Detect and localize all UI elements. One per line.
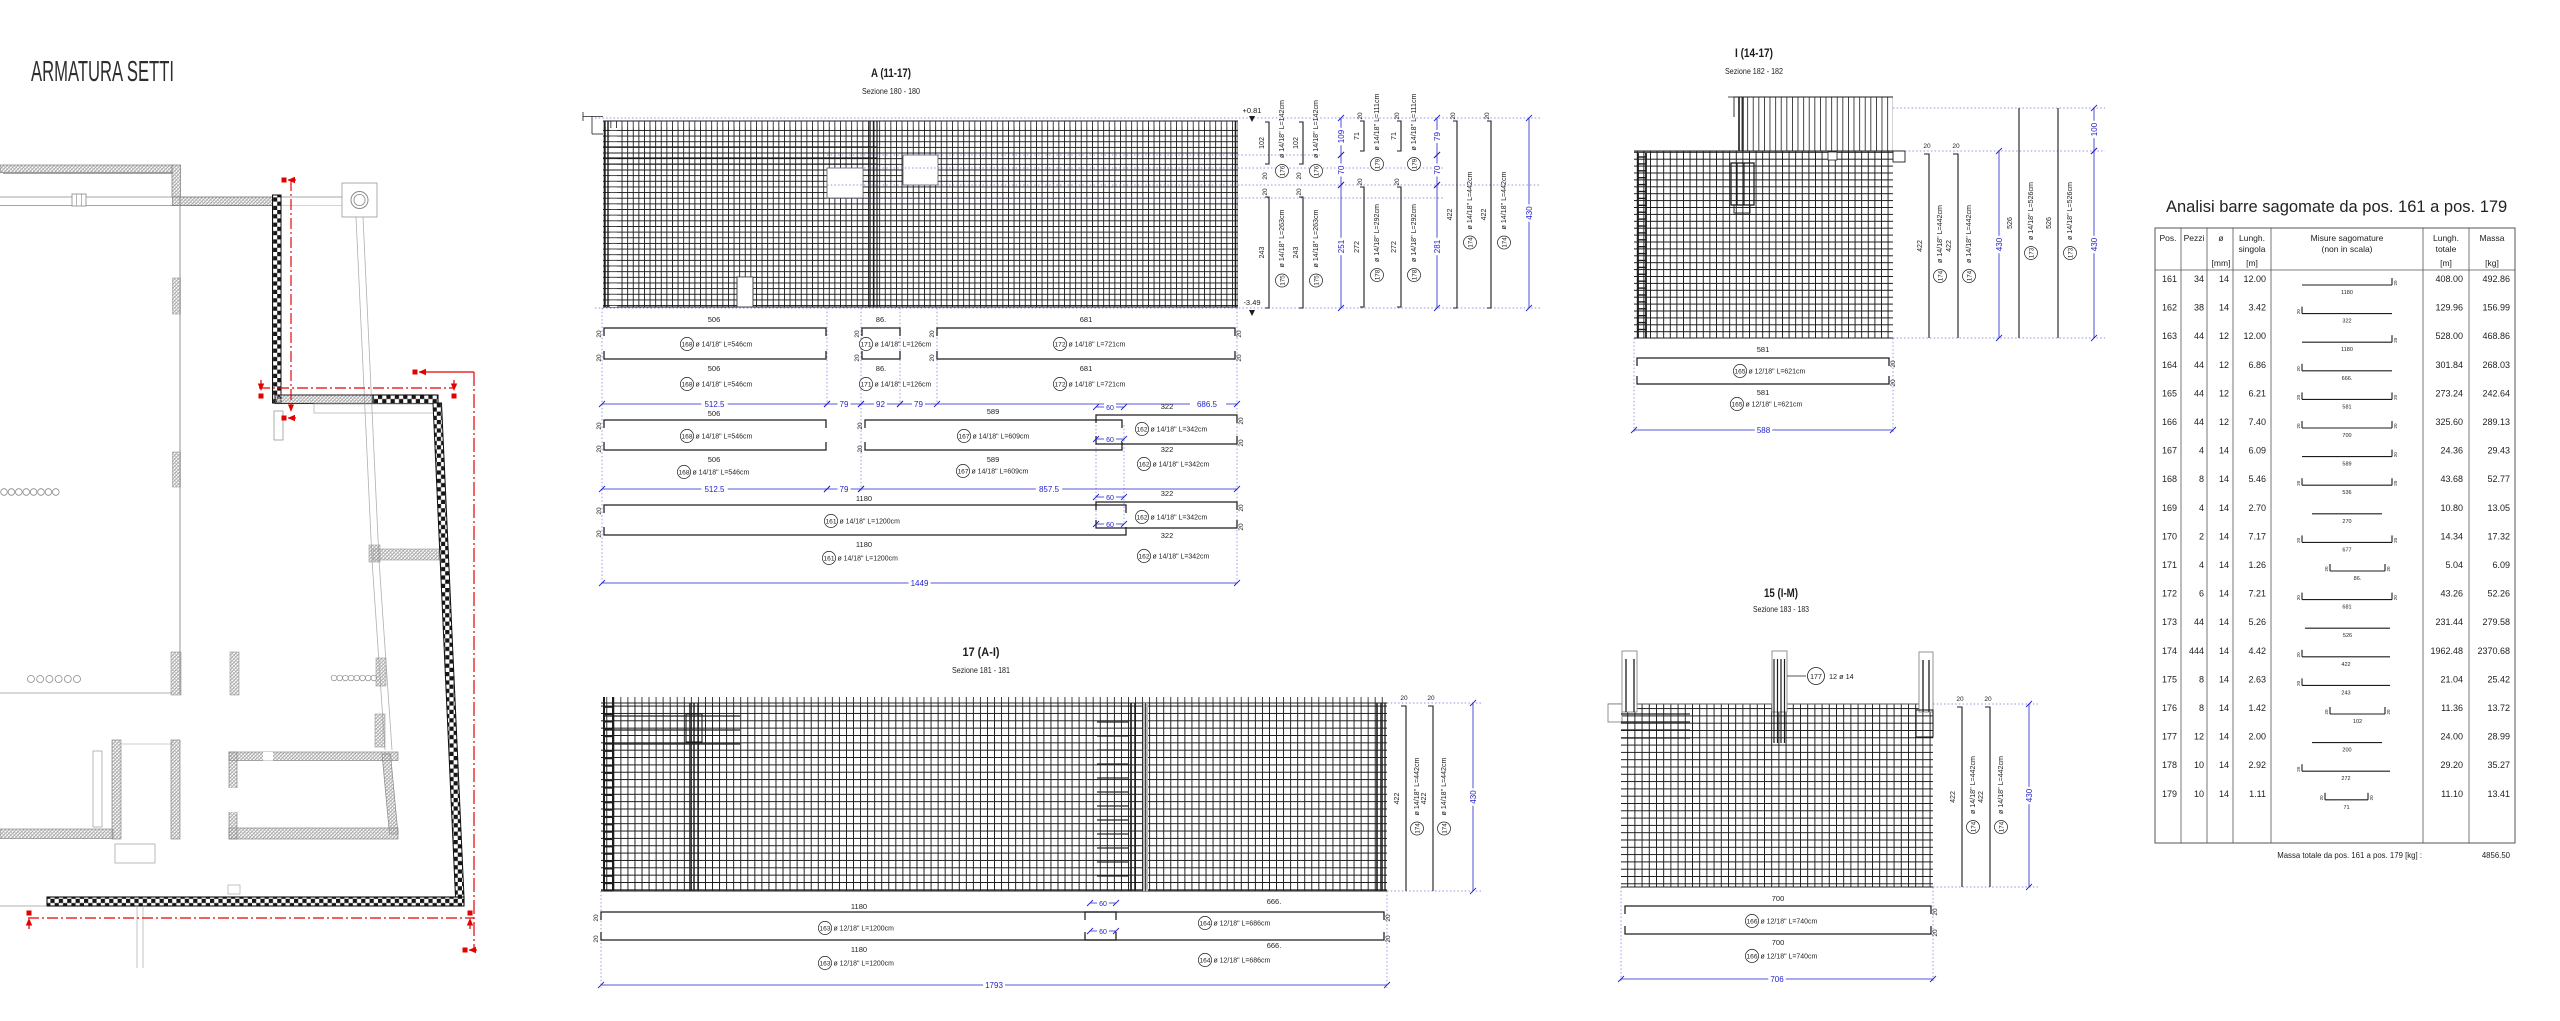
- svg-text:Lungh.: Lungh.: [2433, 233, 2459, 243]
- svg-text:86.: 86.: [876, 315, 886, 324]
- svg-text:Lungh.: Lungh.: [2239, 233, 2265, 243]
- svg-text:20: 20: [1394, 112, 1401, 120]
- svg-text:ø 12/18" L=686cm: ø 12/18" L=686cm: [1214, 956, 1271, 965]
- svg-text:79: 79: [914, 400, 923, 409]
- svg-text:272: 272: [1353, 241, 1361, 253]
- svg-text:20: 20: [1238, 523, 1245, 531]
- svg-text:12 ø 14: 12 ø 14: [1829, 672, 1854, 681]
- svg-text:281: 281: [1433, 239, 1442, 253]
- svg-text:20: 20: [2369, 795, 2374, 801]
- svg-text:422: 422: [1916, 240, 1924, 252]
- svg-text:ø 14/18" L=442cm: ø 14/18" L=442cm: [1936, 205, 1944, 263]
- svg-text:700: 700: [1772, 894, 1785, 903]
- svg-text:430: 430: [1995, 237, 2004, 251]
- svg-text:ø 14/18" L=126cm: ø 14/18" L=126cm: [875, 380, 932, 389]
- svg-text:60: 60: [1106, 405, 1114, 412]
- svg-text:164: 164: [2162, 360, 2177, 370]
- svg-text:171: 171: [2162, 560, 2177, 570]
- svg-text:270: 270: [2342, 519, 2351, 525]
- svg-text:279.58: 279.58: [2482, 617, 2510, 627]
- svg-text:179: 179: [1374, 158, 1381, 169]
- svg-text:+0.81: +0.81: [1243, 106, 1262, 115]
- svg-text:12.00: 12.00: [2243, 274, 2266, 284]
- svg-text:12: 12: [2219, 360, 2229, 370]
- svg-text:164: 164: [1199, 957, 1210, 964]
- svg-text:272: 272: [1390, 241, 1398, 253]
- svg-text:ø 14/18" L=292cm: ø 14/18" L=292cm: [1373, 204, 1381, 262]
- svg-text:ø 14/18" L=142cm: ø 14/18" L=142cm: [1312, 100, 1320, 158]
- svg-text:512.5: 512.5: [704, 485, 725, 494]
- svg-text:243: 243: [2341, 690, 2350, 696]
- svg-text:179: 179: [1411, 158, 1418, 169]
- svg-text:20: 20: [1236, 330, 1243, 338]
- svg-text:165: 165: [2162, 388, 2177, 398]
- svg-text:ø 14/18" L=111cm: ø 14/18" L=111cm: [1410, 93, 1418, 150]
- svg-text:176: 176: [1279, 165, 1286, 176]
- svg-text:172: 172: [1054, 381, 1065, 388]
- svg-text:20: 20: [596, 507, 603, 515]
- svg-text:681: 681: [2342, 605, 2351, 611]
- svg-text:Sezione 182 - 182: Sezione 182 - 182: [1725, 67, 1783, 76]
- svg-text:1793: 1793: [985, 981, 1003, 990]
- svg-text:14: 14: [2219, 446, 2229, 456]
- svg-text:20: 20: [596, 445, 603, 453]
- svg-text:176: 176: [2162, 703, 2177, 713]
- svg-text:4: 4: [2199, 446, 2204, 456]
- svg-text:70: 70: [1337, 165, 1346, 174]
- svg-text:34: 34: [2194, 274, 2204, 284]
- svg-text:178: 178: [2162, 760, 2177, 770]
- svg-text:[kg]: [kg]: [2485, 258, 2499, 268]
- svg-text:168: 168: [681, 381, 692, 388]
- svg-text:ø 14/18" L=442cm: ø 14/18" L=442cm: [1413, 757, 1421, 815]
- svg-text:666.: 666.: [1267, 941, 1282, 950]
- svg-text:422: 422: [1945, 240, 1953, 252]
- svg-text:20: 20: [2324, 709, 2329, 715]
- svg-text:171: 171: [860, 341, 871, 348]
- svg-text:177: 177: [1810, 674, 1822, 681]
- svg-text:3.42: 3.42: [2248, 303, 2266, 313]
- svg-text:175: 175: [1313, 275, 1320, 286]
- svg-text:20: 20: [2386, 709, 2391, 715]
- svg-text:12.00: 12.00: [2243, 331, 2266, 341]
- svg-text:ø 14/18" L=442cm: ø 14/18" L=442cm: [1500, 171, 1508, 229]
- svg-text:20: 20: [2296, 423, 2301, 429]
- svg-text:242.64: 242.64: [2482, 388, 2510, 398]
- svg-text:Sezione 180 - 180: Sezione 180 - 180: [862, 87, 920, 96]
- svg-text:20: 20: [1385, 935, 1392, 943]
- svg-text:ø 14/18" L=546cm: ø 14/18" L=546cm: [696, 432, 753, 441]
- svg-text:301.84: 301.84: [2435, 360, 2463, 370]
- svg-text:174: 174: [1414, 823, 1421, 834]
- svg-text:2: 2: [2199, 531, 2204, 541]
- svg-text:156.99: 156.99: [2482, 303, 2510, 313]
- svg-text:1180: 1180: [851, 902, 867, 911]
- svg-text:322: 322: [1161, 402, 1174, 411]
- svg-text:ø: ø: [2218, 233, 2223, 243]
- svg-text:20: 20: [2296, 680, 2301, 686]
- svg-text:506: 506: [708, 315, 721, 324]
- svg-text:20: 20: [1296, 172, 1303, 180]
- svg-text:20: 20: [2393, 480, 2398, 486]
- svg-text:20: 20: [1394, 178, 1401, 186]
- svg-text:44: 44: [2194, 360, 2204, 370]
- svg-text:268.03: 268.03: [2482, 360, 2510, 370]
- svg-text:272: 272: [2341, 776, 2350, 782]
- svg-text:166: 166: [1746, 953, 1757, 960]
- svg-text:706: 706: [1770, 975, 1784, 984]
- svg-text:20: 20: [1262, 172, 1269, 180]
- svg-text:165: 165: [1731, 401, 1742, 408]
- svg-text:I (14-17): I (14-17): [1735, 48, 1773, 60]
- svg-text:ø 12/18" L=621cm: ø 12/18" L=621cm: [1746, 400, 1803, 409]
- svg-text:28.99: 28.99: [2487, 732, 2510, 742]
- svg-text:2.63: 2.63: [2248, 674, 2266, 684]
- svg-text:163: 163: [819, 960, 830, 967]
- svg-text:A (11-17): A (11-17): [871, 68, 911, 80]
- svg-text:20: 20: [596, 330, 603, 338]
- svg-text:20: 20: [1238, 439, 1245, 447]
- svg-text:20: 20: [1932, 908, 1939, 916]
- svg-text:167: 167: [2162, 446, 2177, 456]
- svg-text:686.5: 686.5: [1197, 400, 1218, 409]
- svg-text:165: 165: [1734, 368, 1745, 375]
- svg-text:ø 14/18" L=1200cm: ø 14/18" L=1200cm: [838, 554, 898, 563]
- svg-text:174: 174: [1998, 821, 2005, 832]
- svg-text:24.00: 24.00: [2440, 732, 2463, 742]
- svg-text:167: 167: [958, 433, 969, 440]
- svg-text:20: 20: [1357, 112, 1364, 120]
- svg-text:322: 322: [1161, 531, 1174, 540]
- svg-text:13.72: 13.72: [2487, 703, 2510, 713]
- svg-text:430: 430: [2025, 788, 2034, 802]
- svg-text:422: 422: [1420, 793, 1428, 805]
- svg-text:6.86: 6.86: [2248, 360, 2266, 370]
- svg-text:1.11: 1.11: [2249, 789, 2266, 799]
- svg-text:444: 444: [2189, 646, 2204, 656]
- svg-text:21.04: 21.04: [2440, 674, 2463, 684]
- svg-text:20: 20: [593, 935, 600, 943]
- svg-text:589: 589: [2342, 462, 2351, 468]
- svg-text:ø 14/18" L=526cm: ø 14/18" L=526cm: [2066, 182, 2074, 240]
- svg-text:1962.48: 1962.48: [2430, 646, 2463, 656]
- svg-text:2.70: 2.70: [2248, 503, 2266, 513]
- svg-text:162: 162: [2162, 303, 2177, 313]
- svg-text:20: 20: [596, 354, 603, 362]
- svg-text:60: 60: [1099, 929, 1107, 936]
- svg-text:161: 161: [2162, 274, 2177, 284]
- svg-text:17.32: 17.32: [2487, 531, 2510, 541]
- svg-text:162: 162: [1138, 461, 1149, 468]
- svg-text:20: 20: [2319, 795, 2324, 801]
- svg-text:8: 8: [2199, 703, 2204, 713]
- svg-text:20: 20: [2296, 595, 2301, 601]
- svg-text:ø 14/18" L=263cm: ø 14/18" L=263cm: [1312, 209, 1320, 267]
- svg-text:ø 14/18" L=126cm: ø 14/18" L=126cm: [875, 340, 932, 349]
- svg-text:52.26: 52.26: [2487, 589, 2510, 599]
- svg-text:ø 14/18" L=442cm: ø 14/18" L=442cm: [1440, 757, 1448, 815]
- svg-text:ø 12/18" L=740cm: ø 12/18" L=740cm: [1761, 917, 1818, 926]
- svg-text:20: 20: [2296, 766, 2301, 772]
- svg-text:20: 20: [2296, 366, 2301, 372]
- svg-text:20: 20: [2296, 309, 2301, 315]
- svg-text:102: 102: [2353, 719, 2362, 725]
- svg-text:172: 172: [2162, 589, 2177, 599]
- svg-text:174: 174: [1970, 821, 1977, 832]
- svg-text:175: 175: [2162, 674, 2177, 684]
- svg-text:20: 20: [1890, 379, 1897, 387]
- svg-text:ø 12/18" L=621cm: ø 12/18" L=621cm: [1749, 367, 1806, 376]
- svg-text:ø 14/18" L=609cm: ø 14/18" L=609cm: [973, 432, 1030, 441]
- svg-text:ø 14/18" L=292cm: ø 14/18" L=292cm: [1410, 204, 1418, 262]
- svg-text:161: 161: [825, 518, 836, 525]
- svg-text:170: 170: [2162, 531, 2177, 541]
- svg-text:ø 14/18" L=546cm: ø 14/18" L=546cm: [696, 340, 753, 349]
- svg-text:20: 20: [1427, 695, 1435, 702]
- svg-text:588: 588: [1757, 426, 1771, 435]
- svg-text:2.00: 2.00: [2248, 732, 2266, 742]
- svg-text:60: 60: [1106, 437, 1114, 444]
- svg-text:20: 20: [2393, 452, 2398, 458]
- svg-text:14: 14: [2219, 732, 2229, 742]
- svg-text:Massa: Massa: [2479, 233, 2504, 243]
- svg-text:14: 14: [2219, 789, 2229, 799]
- svg-text:ø 12/18" L=686cm: ø 12/18" L=686cm: [1214, 919, 1271, 928]
- svg-text:700: 700: [2342, 433, 2351, 439]
- svg-text:4: 4: [2199, 503, 2204, 513]
- svg-text:10.80: 10.80: [2440, 503, 2463, 513]
- svg-text:[mm]: [mm]: [2212, 258, 2231, 268]
- svg-text:ø 12/18" L=740cm: ø 12/18" L=740cm: [1761, 952, 1818, 961]
- svg-text:169: 169: [2162, 503, 2177, 513]
- svg-text:ø 14/18" L=526cm: ø 14/18" L=526cm: [2027, 182, 2035, 240]
- svg-text:Sezione 183 - 183: Sezione 183 - 183: [1753, 605, 1809, 614]
- svg-text:2370.68: 2370.68: [2477, 646, 2510, 656]
- svg-text:857.5: 857.5: [1039, 485, 1060, 494]
- svg-text:6.09: 6.09: [2492, 560, 2510, 570]
- svg-text:71: 71: [1353, 132, 1361, 140]
- svg-text:1.26: 1.26: [2248, 560, 2266, 570]
- svg-text:2.92: 2.92: [2248, 760, 2266, 770]
- svg-text:ø 12/18" L=1200cm: ø 12/18" L=1200cm: [834, 924, 894, 933]
- svg-text:20: 20: [1956, 696, 1964, 703]
- svg-text:322: 322: [1161, 489, 1174, 498]
- svg-text:129.96: 129.96: [2435, 303, 2463, 313]
- svg-text:35.27: 35.27: [2487, 760, 2510, 770]
- svg-text:322: 322: [1161, 445, 1174, 454]
- svg-text:43.26: 43.26: [2440, 589, 2463, 599]
- svg-text:14: 14: [2219, 703, 2229, 713]
- svg-text:589: 589: [987, 407, 1000, 416]
- svg-text:Pos.: Pos.: [2159, 233, 2176, 243]
- svg-text:581: 581: [1757, 345, 1770, 354]
- svg-text:20: 20: [854, 354, 861, 362]
- svg-text:178: 178: [1374, 269, 1381, 280]
- svg-text:[m]: [m]: [2440, 258, 2452, 268]
- svg-text:20: 20: [929, 354, 936, 362]
- svg-text:14: 14: [2219, 760, 2229, 770]
- svg-text:11.36: 11.36: [2441, 703, 2463, 713]
- svg-text:20: 20: [1385, 914, 1392, 922]
- svg-text:422: 422: [1446, 209, 1454, 221]
- svg-text:20: 20: [1238, 504, 1245, 512]
- svg-text:20: 20: [2393, 423, 2398, 429]
- svg-text:Sezione 181 - 181: Sezione 181 - 181: [952, 666, 1010, 675]
- svg-text:175: 175: [1279, 275, 1286, 286]
- svg-text:1180: 1180: [2341, 290, 2353, 296]
- svg-text:ø 14/18" L=1200cm: ø 14/18" L=1200cm: [840, 517, 900, 526]
- svg-text:20: 20: [1484, 112, 1491, 120]
- svg-text:168: 168: [681, 341, 692, 348]
- svg-text:79: 79: [1433, 132, 1442, 141]
- svg-text:52.77: 52.77: [2487, 474, 2510, 484]
- svg-text:163: 163: [819, 925, 830, 932]
- svg-text:506: 506: [708, 364, 721, 373]
- svg-text:506: 506: [708, 409, 721, 418]
- svg-text:ø 14/18" L=546cm: ø 14/18" L=546cm: [696, 380, 753, 389]
- svg-text:174: 174: [1441, 823, 1448, 834]
- svg-text:5.04: 5.04: [2445, 560, 2463, 570]
- svg-text:176: 176: [1313, 165, 1320, 176]
- svg-text:20: 20: [2393, 537, 2398, 543]
- svg-text:ø 14/18" L=342cm: ø 14/18" L=342cm: [1153, 460, 1210, 469]
- svg-text:243: 243: [1258, 247, 1266, 259]
- svg-text:167: 167: [957, 468, 968, 475]
- svg-text:20: 20: [2386, 566, 2391, 572]
- svg-text:468.86: 468.86: [2482, 331, 2510, 341]
- svg-text:8: 8: [2199, 674, 2204, 684]
- svg-text:14: 14: [2219, 303, 2229, 313]
- svg-text:14: 14: [2219, 589, 2229, 599]
- svg-text:Analisi barre sagomate da pos.: Analisi barre sagomate da pos. 161 a pos…: [2166, 198, 2507, 216]
- svg-text:168: 168: [678, 469, 689, 476]
- svg-text:ø 14/18" L=442cm: ø 14/18" L=442cm: [1997, 756, 2005, 814]
- svg-text:422: 422: [1977, 791, 1985, 803]
- svg-text:162: 162: [1136, 426, 1147, 433]
- svg-text:44: 44: [2194, 388, 2204, 398]
- svg-text:536: 536: [2342, 490, 2351, 496]
- svg-text:8: 8: [2199, 474, 2204, 484]
- svg-text:174: 174: [1937, 270, 1944, 281]
- svg-text:20: 20: [1952, 143, 1960, 150]
- svg-text:60: 60: [1099, 901, 1107, 908]
- svg-text:102: 102: [1292, 137, 1300, 149]
- svg-text:13.41: 13.41: [2487, 789, 2510, 799]
- svg-text:20: 20: [2296, 480, 2301, 486]
- svg-text:168: 168: [681, 433, 692, 440]
- svg-text:14: 14: [2219, 474, 2229, 484]
- svg-text:15 (I-M): 15 (I-M): [1764, 588, 1798, 600]
- svg-text:14: 14: [2219, 274, 2229, 284]
- svg-text:38: 38: [2194, 303, 2204, 313]
- svg-text:109: 109: [1337, 129, 1346, 143]
- svg-text:681: 681: [1080, 364, 1093, 373]
- svg-text:581: 581: [1757, 388, 1770, 397]
- svg-text:ø 14/18" L=609cm: ø 14/18" L=609cm: [972, 467, 1029, 476]
- svg-text:20: 20: [2296, 652, 2301, 658]
- svg-text:ø 14/18" L=342cm: ø 14/18" L=342cm: [1153, 552, 1210, 561]
- svg-text:289.13: 289.13: [2482, 417, 2510, 427]
- svg-text:ø 14/18" L=263cm: ø 14/18" L=263cm: [1278, 209, 1286, 267]
- svg-text:20: 20: [2296, 394, 2301, 400]
- svg-text:60: 60: [1106, 495, 1114, 502]
- svg-text:44: 44: [2194, 331, 2204, 341]
- svg-text:20: 20: [1400, 695, 1408, 702]
- svg-text:ø 14/18" L=342cm: ø 14/18" L=342cm: [1151, 513, 1208, 522]
- svg-text:70: 70: [1433, 165, 1442, 174]
- svg-text:168: 168: [2162, 474, 2177, 484]
- svg-text:12: 12: [2194, 732, 2204, 742]
- svg-text:(non in scala): (non in scala): [2321, 244, 2372, 254]
- svg-text:20: 20: [1984, 696, 1992, 703]
- svg-text:20: 20: [596, 530, 603, 538]
- svg-text:1180: 1180: [856, 494, 872, 503]
- svg-text:243: 243: [1292, 247, 1300, 259]
- svg-text:ø 14/18" L=442cm: ø 14/18" L=442cm: [1466, 171, 1474, 229]
- svg-text:20: 20: [596, 422, 603, 430]
- svg-text:526: 526: [2045, 217, 2053, 229]
- svg-text:174: 174: [1966, 270, 1973, 281]
- svg-text:20: 20: [2393, 280, 2398, 286]
- svg-text:422: 422: [1393, 793, 1401, 805]
- svg-text:86.: 86.: [2354, 576, 2362, 582]
- svg-text:17 (A-I): 17 (A-I): [963, 647, 1000, 659]
- svg-text:422: 422: [1949, 791, 1957, 803]
- svg-text:12: 12: [2219, 417, 2229, 427]
- svg-text:162: 162: [1136, 514, 1147, 521]
- svg-text:71: 71: [1390, 132, 1398, 140]
- svg-text:322: 322: [2342, 319, 2351, 325]
- svg-text:430: 430: [1525, 206, 1534, 220]
- svg-text:5.46: 5.46: [2248, 474, 2266, 484]
- svg-text:14: 14: [2219, 503, 2229, 513]
- svg-text:7.17: 7.17: [2248, 531, 2266, 541]
- svg-text:ø 14/18" L=442cm: ø 14/18" L=442cm: [1965, 205, 1973, 263]
- svg-text:589: 589: [987, 455, 1000, 464]
- svg-text:29.20: 29.20: [2440, 760, 2463, 770]
- svg-text:79: 79: [840, 485, 849, 494]
- svg-text:20: 20: [593, 914, 600, 922]
- svg-text:408.00: 408.00: [2435, 274, 2463, 284]
- svg-text:12: 12: [2219, 388, 2229, 398]
- svg-text:14: 14: [2219, 531, 2229, 541]
- svg-text:174: 174: [1467, 237, 1474, 248]
- svg-text:Pezzi: Pezzi: [2184, 233, 2205, 243]
- svg-text:79: 79: [840, 400, 849, 409]
- svg-text:173: 173: [2162, 617, 2177, 627]
- svg-text:666.: 666.: [2342, 376, 2353, 382]
- svg-text:162: 162: [1138, 553, 1149, 560]
- svg-text:173: 173: [2029, 247, 2036, 258]
- svg-text:6: 6: [2199, 589, 2204, 599]
- svg-text:20: 20: [1238, 417, 1245, 425]
- svg-text:20: 20: [2324, 566, 2329, 572]
- svg-text:163: 163: [2162, 331, 2177, 341]
- svg-text:[m]: [m]: [2246, 258, 2258, 268]
- svg-text:273.24: 273.24: [2435, 388, 2463, 398]
- svg-text:200: 200: [2342, 748, 2351, 754]
- svg-text:325.60: 325.60: [2435, 417, 2463, 427]
- svg-text:422: 422: [1480, 209, 1488, 221]
- svg-text:ø 14/18" L=721cm: ø 14/18" L=721cm: [1069, 340, 1126, 349]
- svg-text:102: 102: [1258, 137, 1266, 149]
- svg-text:Misure sagomature: Misure sagomature: [2311, 233, 2384, 243]
- svg-text:4856.50: 4856.50: [2482, 851, 2511, 860]
- svg-text:20: 20: [1296, 188, 1303, 196]
- svg-text:20: 20: [2393, 394, 2398, 400]
- svg-text:20: 20: [1450, 112, 1457, 120]
- svg-text:512.5: 512.5: [704, 400, 725, 409]
